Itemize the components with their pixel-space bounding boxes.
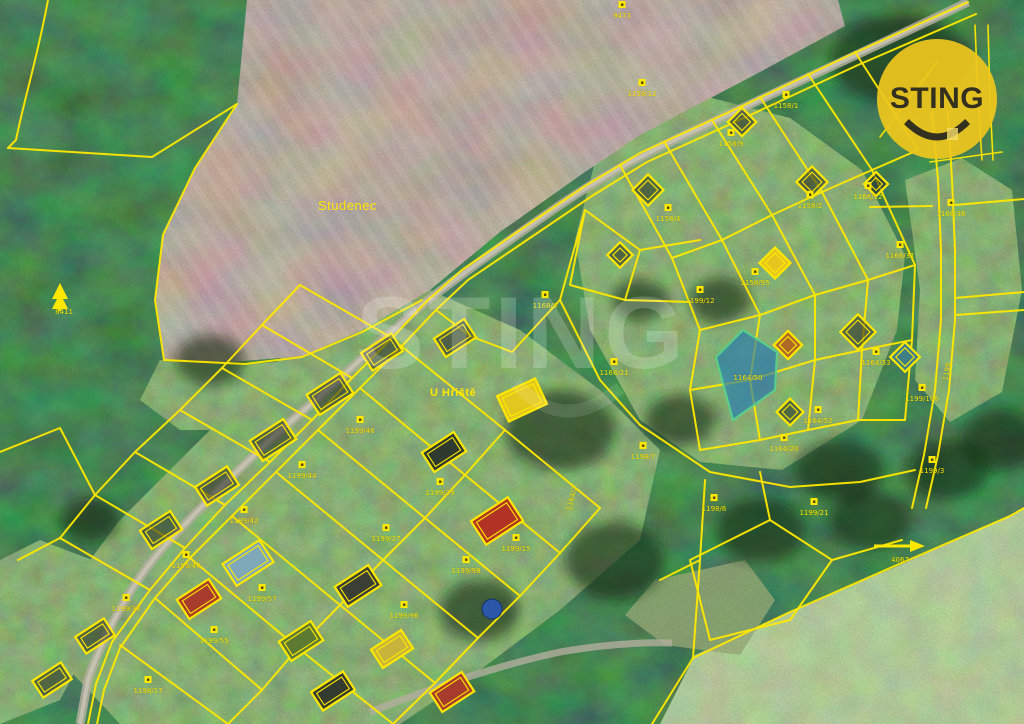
highlight-parcel-number: 1164/50	[733, 374, 762, 382]
parcel-number-label: 1199/40	[171, 562, 200, 570]
parcel-number-label: 1199/42	[229, 517, 258, 525]
pool	[482, 599, 502, 619]
parcel-number-label: 1199/98	[451, 567, 480, 575]
cadastral-map-screenshot: 1164/50 947384111158/121158/11158/91158/…	[0, 0, 1024, 724]
parcel-number-label: 1199/3	[920, 467, 945, 475]
parcel-number-label: 1198/17	[133, 687, 162, 695]
parcel-number-label: 1158/95	[740, 279, 769, 287]
parcel-number-label: 8411	[55, 308, 73, 316]
parcel-number-label: 1158/1	[774, 102, 799, 110]
logo-text: STING	[890, 82, 984, 115]
parcel-number-label: 1158/12	[627, 90, 656, 98]
parcel-number-label: 1199/38	[111, 605, 140, 613]
parcel-number-label: 4067	[891, 556, 909, 564]
parcel-number-label: 1199/106	[905, 395, 939, 403]
parcel-number-label: 1199/12	[685, 297, 714, 305]
parcel-number-label: 1158/2	[798, 202, 823, 210]
cadastral-map-canvas[interactable]: 1164/50 947384111158/121158/11158/91158/…	[0, 0, 1024, 724]
parcel-number-label: 1166/12	[853, 193, 882, 201]
parcel-number-label: 1158/4	[656, 215, 681, 223]
parcel-number-label: 1199/21	[799, 509, 828, 517]
sting-logo: STING	[877, 39, 997, 159]
parcel-number-label: 1166/36	[936, 210, 966, 218]
parcel-number-label: 1164/20	[769, 445, 798, 453]
parcel-number-label: 1199/55	[199, 637, 228, 645]
parcel-number-label: 1199/27	[371, 535, 400, 543]
parcel-number-label: 1198/7	[631, 453, 656, 461]
parcel-number-label: 1199/96	[389, 612, 419, 620]
place-label: Studenec	[318, 198, 377, 213]
parcel-number-label: 1199/44	[287, 472, 317, 480]
parcel-number-label: 9473	[613, 12, 631, 20]
parcel-number-label: 1199/15	[501, 545, 530, 553]
parcel-number-label: 1164/52	[803, 417, 832, 425]
parcel-number-label: 1199/46	[345, 427, 375, 435]
parcel-number-label: 1158/9	[719, 140, 744, 148]
parcel-number-label: 1166/31	[885, 252, 914, 260]
watermark-text: STING	[356, 276, 688, 390]
parcel-number-label: 1199/29	[425, 489, 454, 497]
parcel-number-label: 1199/57	[247, 595, 276, 603]
parcel-number-label: 1164/33	[861, 359, 890, 367]
parcel-number-label: 1198/6	[702, 505, 727, 513]
